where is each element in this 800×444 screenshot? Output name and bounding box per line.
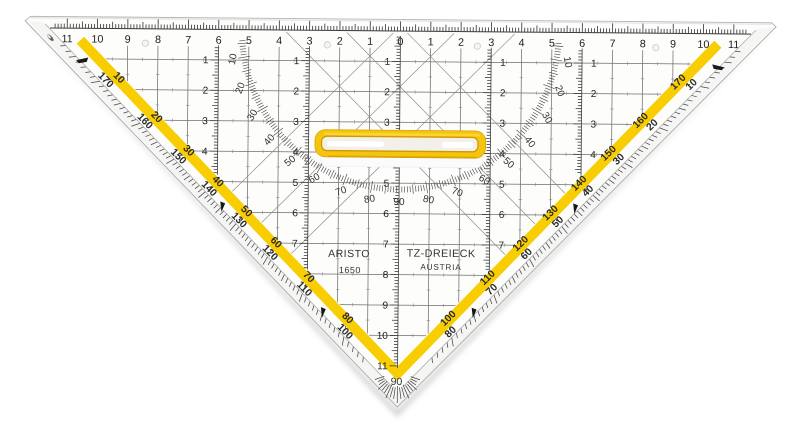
svg-text:2: 2: [384, 87, 390, 98]
svg-text:9: 9: [125, 34, 131, 46]
svg-text:1: 1: [294, 56, 300, 67]
svg-text:ARISTO: ARISTO: [328, 248, 370, 260]
svg-text:4: 4: [276, 35, 282, 47]
svg-text:5: 5: [246, 35, 252, 47]
svg-text:8: 8: [155, 34, 161, 46]
svg-text:10: 10: [561, 56, 574, 69]
svg-text:6: 6: [383, 209, 389, 220]
svg-text:AUSTRIA: AUSTRIA: [420, 263, 461, 272]
svg-text:2: 2: [293, 86, 299, 97]
svg-text:7: 7: [292, 239, 298, 250]
svg-text:1: 1: [428, 36, 434, 48]
svg-text:5: 5: [293, 178, 299, 189]
svg-text:11: 11: [377, 361, 388, 372]
svg-text:TZ-DREIECK: TZ-DREIECK: [407, 248, 476, 261]
svg-text:3: 3: [384, 118, 390, 129]
svg-text:2: 2: [337, 36, 343, 48]
svg-text:1: 1: [500, 58, 506, 69]
svg-text:4: 4: [202, 147, 208, 158]
svg-text:2: 2: [203, 86, 209, 97]
svg-text:1: 1: [385, 57, 391, 68]
svg-text:3: 3: [488, 37, 494, 49]
svg-text:5: 5: [549, 37, 555, 49]
svg-text:3: 3: [500, 119, 506, 130]
svg-text:7: 7: [609, 38, 615, 50]
svg-text:3: 3: [202, 116, 208, 127]
svg-text:6: 6: [292, 208, 298, 219]
svg-text:10: 10: [91, 34, 103, 46]
svg-text:3: 3: [306, 35, 312, 47]
svg-text:90: 90: [393, 197, 405, 208]
svg-text:1: 1: [203, 55, 209, 66]
svg-text:90: 90: [391, 376, 403, 388]
svg-text:3: 3: [590, 119, 596, 130]
svg-text:4: 4: [590, 150, 596, 161]
svg-text:6: 6: [579, 38, 585, 50]
svg-text:2: 2: [500, 88, 506, 99]
svg-text:7: 7: [498, 241, 504, 252]
svg-text:7: 7: [383, 240, 389, 251]
svg-text:7: 7: [185, 34, 191, 46]
svg-text:6: 6: [216, 35, 222, 47]
svg-text:10: 10: [377, 331, 389, 342]
svg-text:4: 4: [519, 37, 525, 49]
svg-text:2: 2: [458, 37, 464, 49]
svg-text:1: 1: [367, 36, 373, 48]
svg-text:8: 8: [383, 270, 389, 281]
svg-text:80: 80: [363, 193, 376, 206]
svg-text:5: 5: [499, 180, 505, 191]
svg-text:9: 9: [382, 300, 388, 311]
svg-text:1650: 1650: [339, 265, 361, 275]
svg-text:1: 1: [591, 59, 597, 70]
svg-text:3: 3: [293, 117, 299, 128]
svg-text:5: 5: [384, 179, 390, 190]
svg-text:8: 8: [640, 38, 646, 50]
svg-text:6: 6: [499, 210, 505, 221]
svg-text:9: 9: [670, 39, 676, 51]
svg-text:2: 2: [591, 89, 597, 100]
